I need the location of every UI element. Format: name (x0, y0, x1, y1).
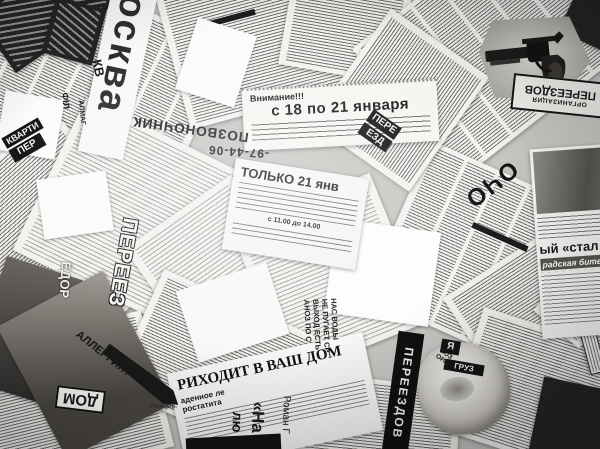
fedor-caption: ЁДОР (56, 261, 74, 299)
fil-text: ФІЛ (60, 92, 71, 109)
attention-ad: Внимание!!! с 18 по 21 января (242, 79, 440, 151)
roman-text: Роман Г (280, 396, 292, 434)
lyu-text: лю (229, 411, 246, 432)
stalingrad-article: ый «стал радская битва (529, 143, 600, 339)
caption-lines (537, 211, 600, 239)
newspaper-collage-photo: осква КВАРТИ ПЕР КВ ФІЛ АЛМАГ Внимание!!… (0, 0, 600, 449)
battle-photo (533, 146, 600, 214)
paper-fold (36, 170, 114, 239)
stal-headline: ый «стал (539, 236, 600, 257)
article-lines (541, 267, 600, 325)
na-title-text: «На (247, 401, 268, 433)
waterlines-ad: НАС ВОДЫ НЕ ПУГАЕТ СР ВЫХОД ЕСТЬ АНОЗ ПО… (302, 298, 343, 395)
sketch-shading (439, 375, 476, 403)
website-url: www.pro- (150, 404, 177, 411)
